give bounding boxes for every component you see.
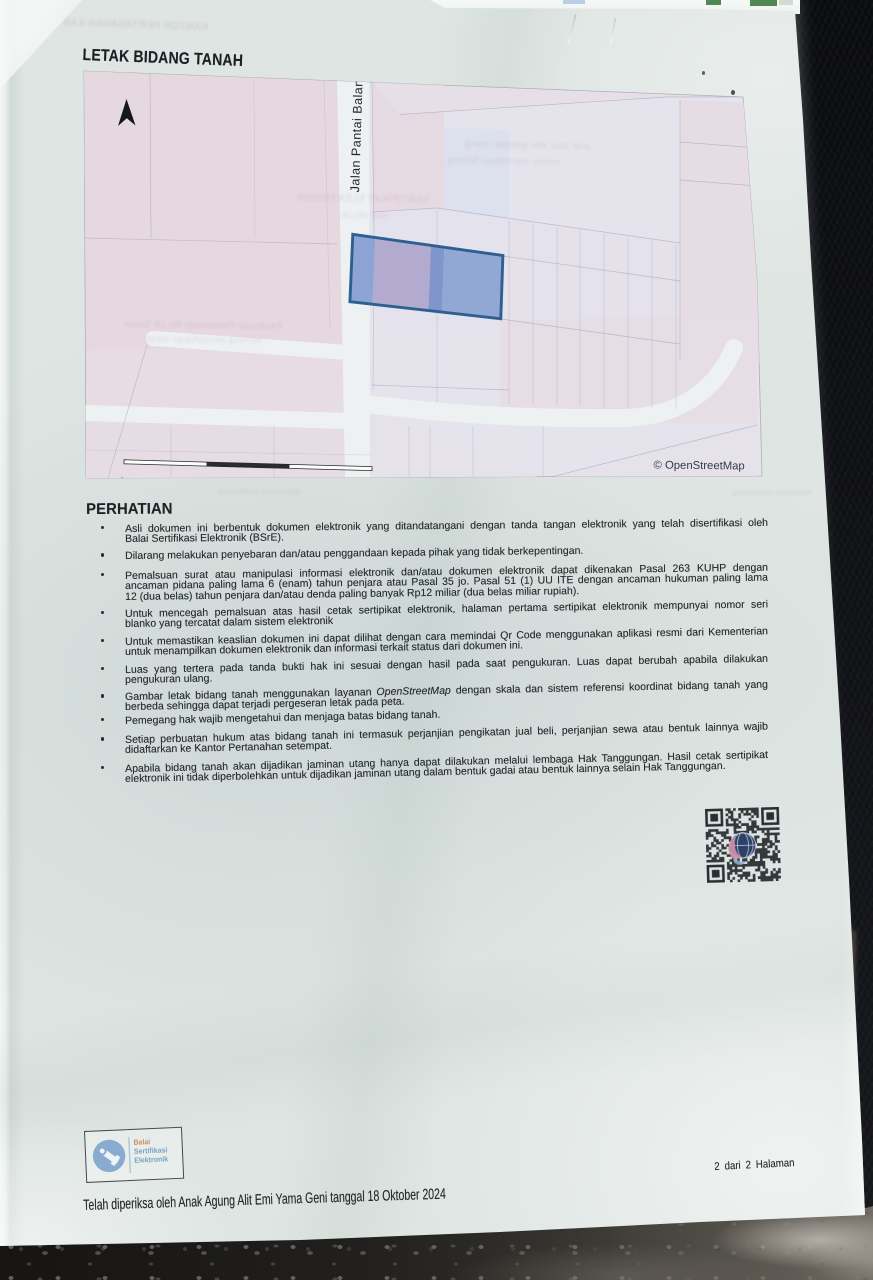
svg-text:0: 0: [120, 476, 125, 485]
svg-text:Elektronik: Elektronik: [134, 1154, 169, 1165]
svg-text:© OpenStreetMap: © OpenStreetMap: [653, 460, 744, 473]
svg-text:20: 20: [200, 478, 210, 487]
svg-text:60m: 60m: [350, 482, 366, 488]
